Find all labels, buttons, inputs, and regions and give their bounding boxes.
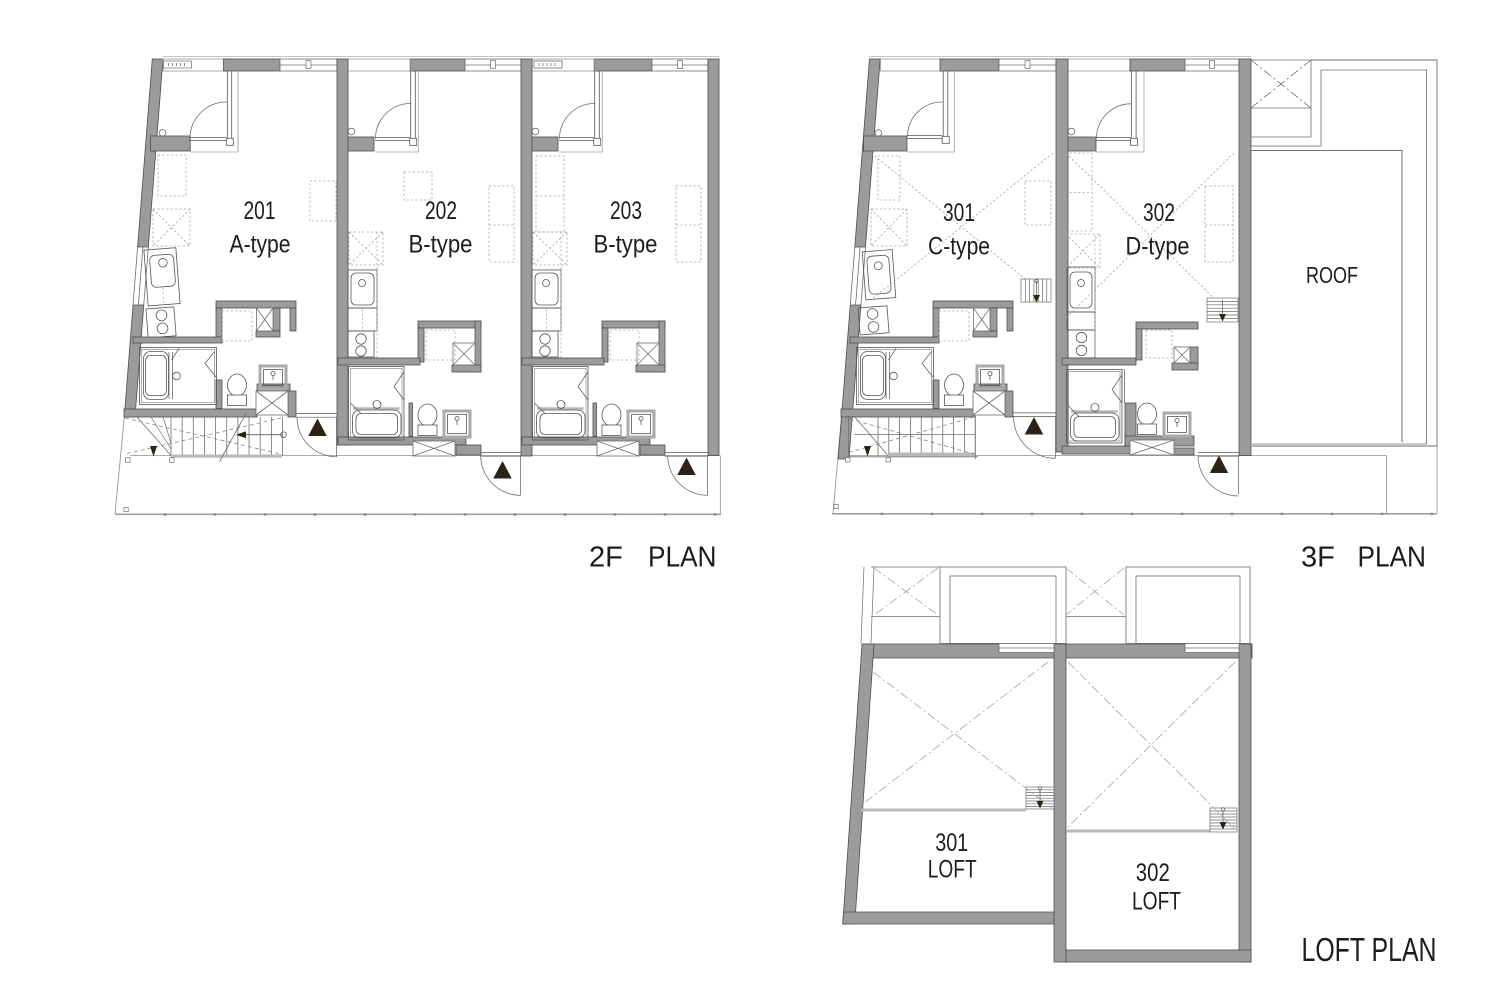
svg-text:2F: 2F: [589, 542, 623, 574]
svg-text:ROOF: ROOF: [1306, 262, 1358, 288]
svg-text:302: 302: [1143, 199, 1175, 227]
svg-text:203: 203: [610, 197, 642, 225]
svg-text:C-type: C-type: [928, 233, 990, 261]
svg-text:301: 301: [935, 829, 968, 857]
svg-text:202: 202: [425, 197, 457, 225]
svg-text:LOFT: LOFT: [928, 856, 977, 884]
svg-text:B-type: B-type: [409, 231, 473, 259]
svg-text:301: 301: [943, 199, 975, 227]
svg-text:LOFT PLAN: LOFT PLAN: [1302, 931, 1437, 968]
svg-text:D-type: D-type: [1126, 233, 1190, 261]
svg-text:B-type: B-type: [594, 231, 658, 259]
svg-text:LOFT: LOFT: [1132, 888, 1181, 916]
svg-text:PLAN: PLAN: [648, 542, 717, 574]
svg-text:A-type: A-type: [230, 231, 291, 259]
svg-text:201: 201: [244, 197, 276, 225]
svg-text:302: 302: [1136, 859, 1170, 887]
svg-text:3F: 3F: [1301, 542, 1335, 574]
svg-text:PLAN: PLAN: [1358, 542, 1427, 574]
